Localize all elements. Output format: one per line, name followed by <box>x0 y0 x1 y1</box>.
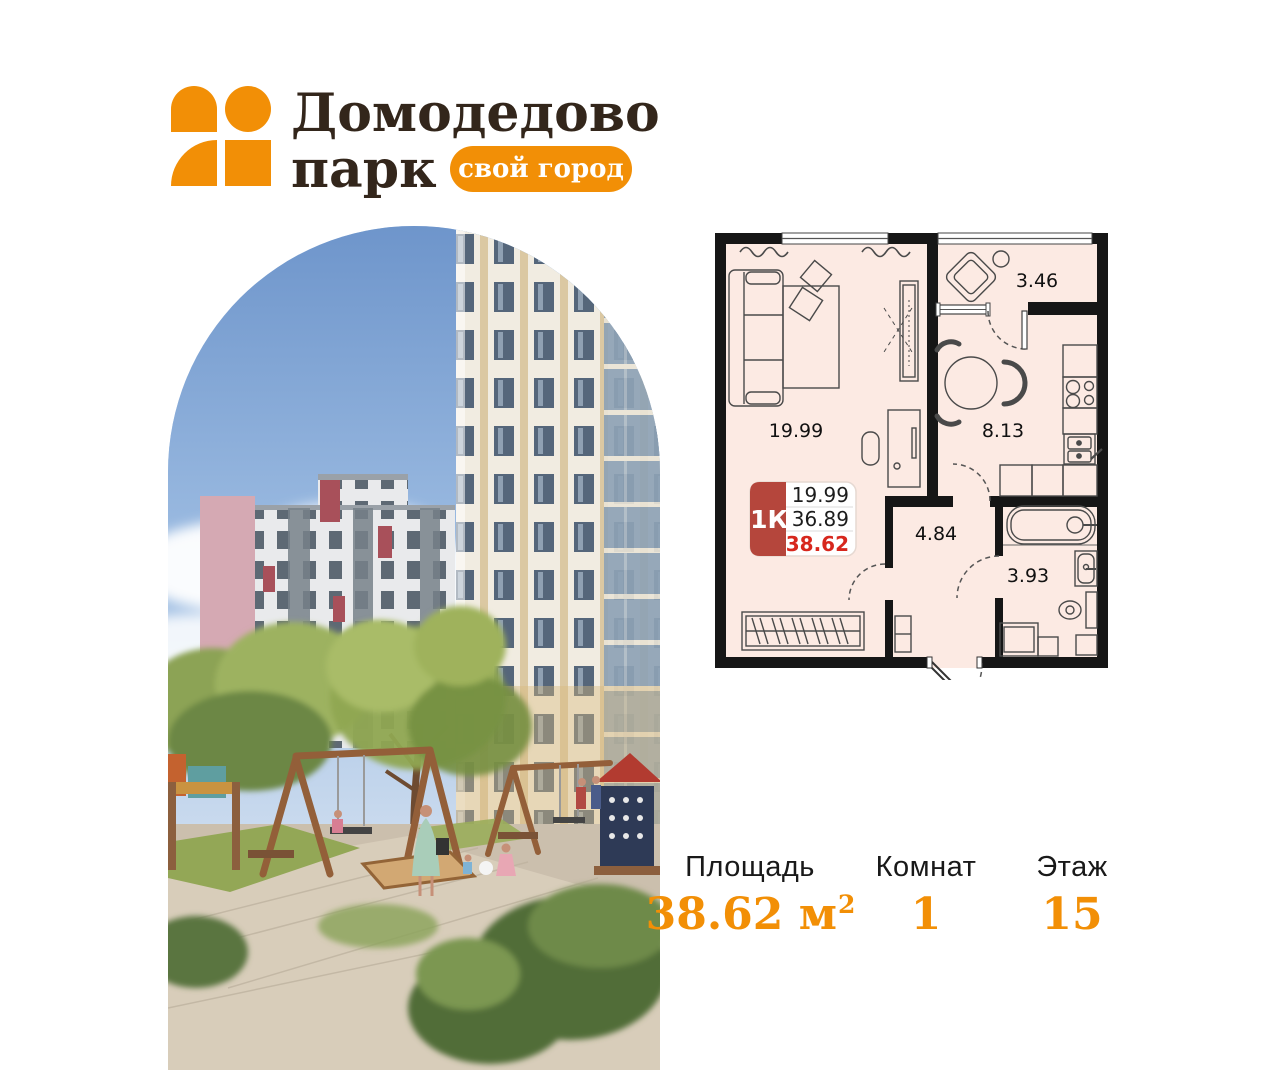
stat-area: Площадь 38.62 м2 <box>635 851 865 943</box>
stat-rooms: Комнат 1 <box>856 851 996 937</box>
stat-floor-value: 15 <box>1002 893 1142 937</box>
stat-area-value: 38.62 м2 <box>635 893 865 943</box>
unit-type-label: 1К <box>750 505 788 534</box>
stat-floor-label: Этаж <box>1002 851 1142 884</box>
badge-area-without-balcony: 36.89 <box>792 507 849 531</box>
listing-card: Домодедово парк свой город <box>0 0 1280 1070</box>
stat-rooms-value: 1 <box>856 893 996 937</box>
stat-area-label: Площадь <box>635 851 865 884</box>
stat-floor: Этаж 15 <box>1002 851 1142 937</box>
stat-area-sup: 2 <box>838 890 855 919</box>
unit-info-badge: 1К 19.99 36.89 38.62 <box>750 482 856 556</box>
stat-rooms-label: Комнат <box>856 851 996 884</box>
balcony-area: 3.46 <box>1016 270 1058 292</box>
bathroom-area: 3.93 <box>1007 565 1049 587</box>
hallway-area: 4.84 <box>915 523 957 545</box>
brand-logo-icon <box>171 86 271 186</box>
logo-quarter-shape <box>171 140 217 186</box>
badge-total-area: 38.62 <box>786 532 849 556</box>
complex-photo <box>168 226 660 1070</box>
brand-slogan-badge: свой город <box>450 146 632 192</box>
badge-living-area: 19.99 <box>792 483 849 507</box>
living-room-area: 19.99 <box>769 420 823 442</box>
kitchen-area: 8.13 <box>982 420 1024 442</box>
floor-plan-drawing: 19.99 8.13 3.46 4.84 3.93 1К 19.99 36.89… <box>705 225 1120 680</box>
photo-scene <box>168 226 660 1070</box>
stat-area-number: 38.62 м <box>646 889 837 940</box>
brand-title-line1: Домодедово <box>291 88 660 140</box>
logo-circle-shape <box>225 86 271 132</box>
floor-plan: 19.99 8.13 3.46 4.84 3.93 1К 19.99 36.89… <box>705 225 1120 680</box>
logo-arch-shape <box>171 86 217 132</box>
brand-title-line2: парк <box>291 144 437 196</box>
logo-square-shape <box>225 140 271 186</box>
